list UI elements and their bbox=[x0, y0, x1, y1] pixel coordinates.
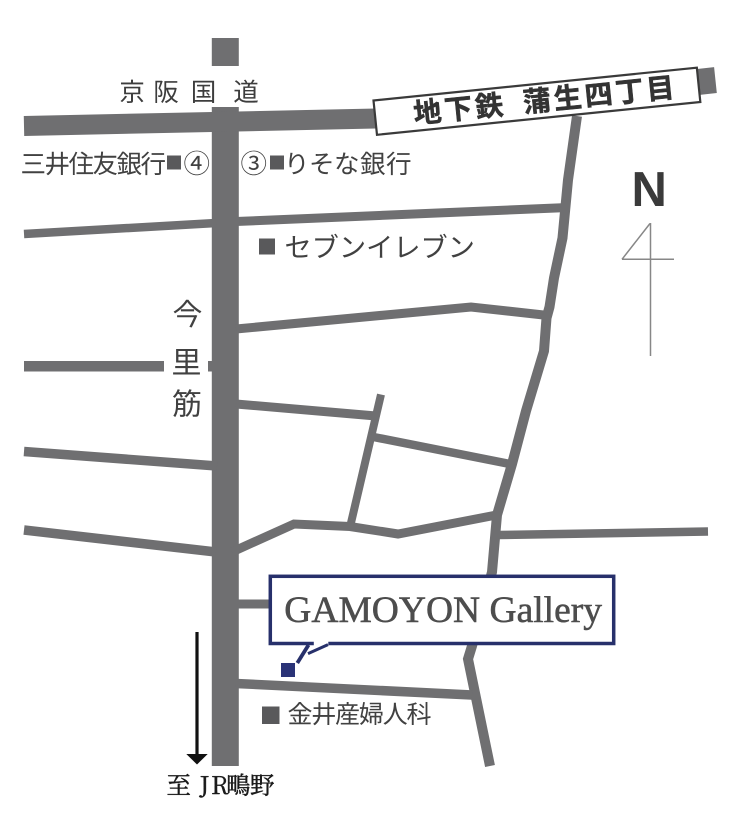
svg-text:N: N bbox=[632, 163, 667, 217]
svg-text:GAMOYON Gallery: GAMOYON Gallery bbox=[284, 590, 602, 631]
